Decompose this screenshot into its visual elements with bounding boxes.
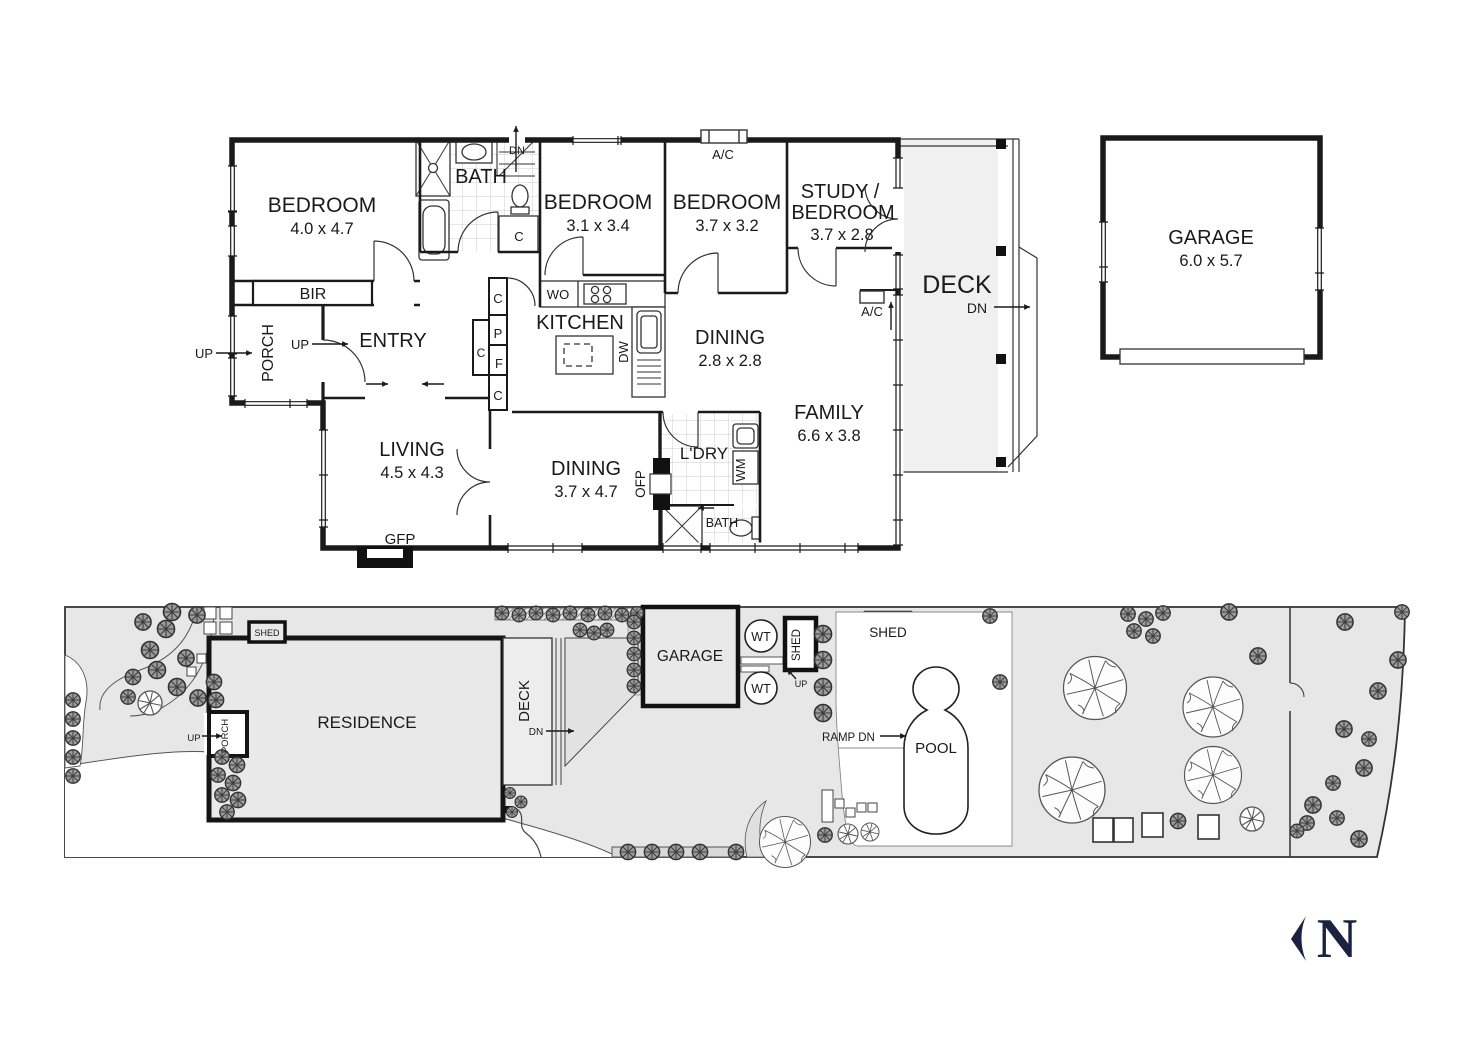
site-up1-label: UP [187, 733, 200, 744]
north-letter: N [1317, 908, 1357, 970]
bedroom2-dims: 3.1 x 3.4 [566, 217, 629, 235]
north-arrow: N [1291, 908, 1357, 970]
site-plan: RESIDENCE PORCH UP DECK DN GARAGE WT WT … [65, 604, 1409, 868]
north-arrow-icon [1291, 916, 1306, 961]
ofp-label: OFP [633, 470, 648, 498]
site-deck-dn-label: DN [529, 727, 543, 738]
deck-label: DECK [922, 271, 992, 299]
dining2-label: DINING [551, 458, 621, 480]
closet-f: F [495, 356, 503, 371]
site-shed2-label: SHED [791, 629, 803, 661]
site-garage-label: GARAGE [657, 648, 723, 665]
study-line2: BEDROOM [791, 202, 894, 224]
detached-garage: GARAGE 6.0 x 5.7 [1103, 138, 1320, 364]
gfp-fireplace [357, 546, 413, 568]
dining1-label: DINING [695, 327, 765, 349]
living-dims: 4.5 x 4.3 [380, 464, 443, 482]
bir-label: BIR [300, 286, 327, 303]
floorplan-page: BEDROOM 4.0 x 4.7 BATH DN C BEDROOM 3.1 … [0, 0, 1472, 1040]
gfp-label: GFP [385, 531, 416, 548]
up-outer-label: UP [195, 346, 213, 361]
pool-label: POOL [915, 740, 957, 757]
floorplan-drawing: BEDROOM 4.0 x 4.7 BATH DN C BEDROOM 3.1 … [0, 0, 1472, 1040]
garden-squares [1093, 813, 1219, 842]
stair-dn-label: DN [509, 145, 525, 157]
closet-c3: C [477, 346, 486, 360]
study-dims: 3.7 x 2.8 [810, 226, 873, 244]
dw-label: DW [616, 340, 631, 362]
ldry-label: L'DRY [680, 444, 728, 463]
deck-dn-label: DN [967, 300, 987, 316]
study-line1: STUDY / [801, 181, 880, 203]
garage-label: GARAGE [1168, 227, 1254, 249]
site-shed1-label: SHED [254, 628, 280, 638]
ramp-dn-label: RAMP DN [822, 732, 875, 744]
site-shed3-label: SHED [869, 625, 907, 640]
family-dims: 6.6 x 3.8 [797, 427, 860, 445]
porch-label: PORCH [260, 324, 277, 382]
dining2-dims: 3.7 x 4.7 [554, 483, 617, 501]
entry-label: ENTRY [359, 330, 426, 352]
bedroom3-dims: 3.7 x 3.2 [695, 217, 758, 235]
living-label: LIVING [379, 439, 445, 461]
closet-c4: C [493, 388, 502, 403]
bath1-label: BATH [455, 166, 507, 188]
site-residence-label: RESIDENCE [317, 713, 416, 732]
bedroom3-label: BEDROOM [673, 191, 782, 214]
closet-p: P [494, 326, 503, 341]
site-shed2-up-label: UP [795, 679, 808, 689]
bedroom2-label: BEDROOM [544, 191, 653, 214]
up-porch-label: UP [291, 337, 309, 352]
bath2-label: BATH [706, 516, 738, 530]
bedroom1-dims: 4.0 x 4.7 [290, 220, 353, 238]
closet-c2: C [493, 291, 502, 306]
bedroom1-label: BEDROOM [268, 194, 377, 217]
garage-dims: 6.0 x 5.7 [1179, 252, 1242, 270]
ac2-label: A/C [861, 304, 883, 319]
site-deck-label: DECK [516, 680, 533, 722]
wo-label: WO [547, 287, 569, 302]
wt1-label: WT [751, 630, 771, 644]
dining1-dims: 2.8 x 2.8 [698, 352, 761, 370]
garage-door [1120, 349, 1304, 364]
ac1-label: A/C [712, 147, 734, 162]
ofp-fireplace [650, 458, 671, 510]
closet-c1: C [514, 229, 523, 244]
wt2-label: WT [751, 682, 771, 696]
family-label: FAMILY [794, 402, 864, 424]
wm-label: WM [733, 458, 748, 481]
kitchen-label: KITCHEN [536, 312, 624, 334]
